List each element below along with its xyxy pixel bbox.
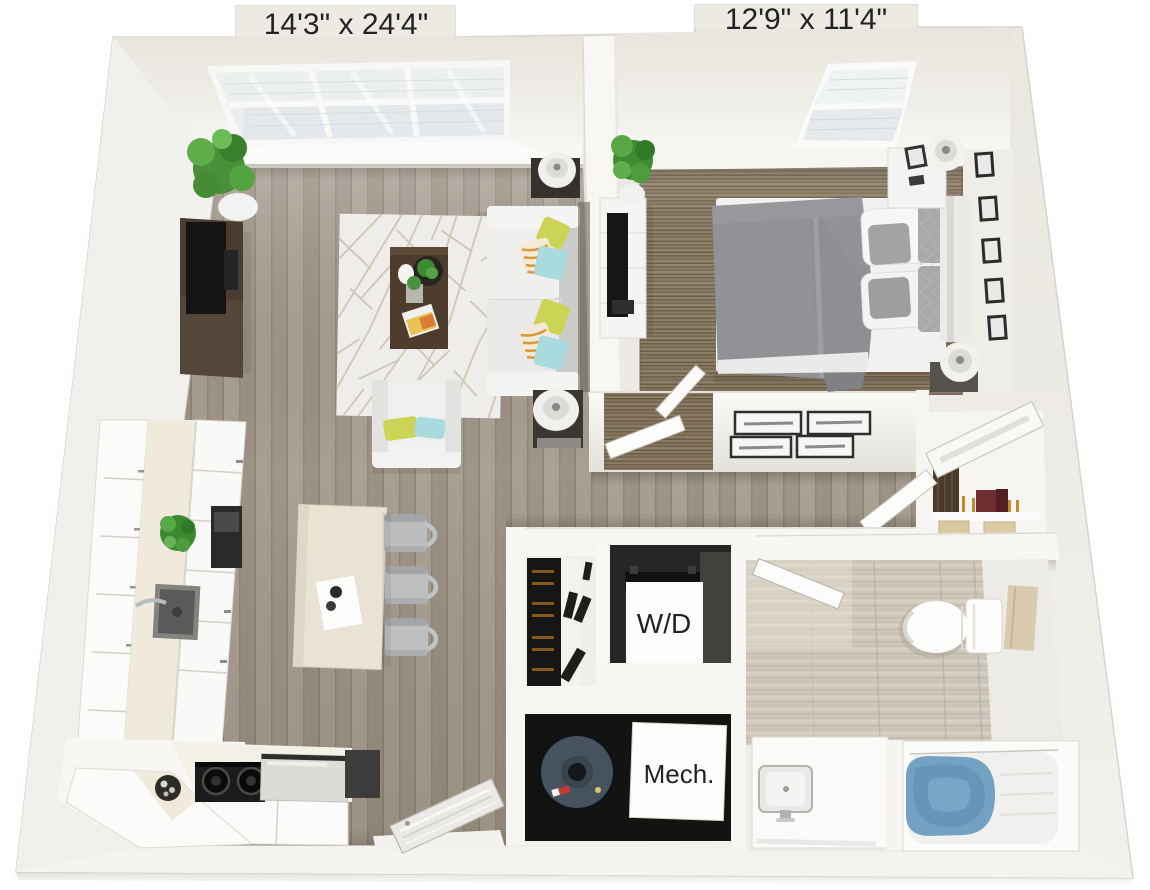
- svg-text:14'3" x 24'4": 14'3" x 24'4": [264, 8, 429, 41]
- svg-text:12'9" x 11'4": 12'9" x 11'4": [725, 3, 887, 36]
- svg-text:W/D: W/D: [637, 608, 691, 639]
- svg-text:Mech.: Mech.: [644, 759, 715, 789]
